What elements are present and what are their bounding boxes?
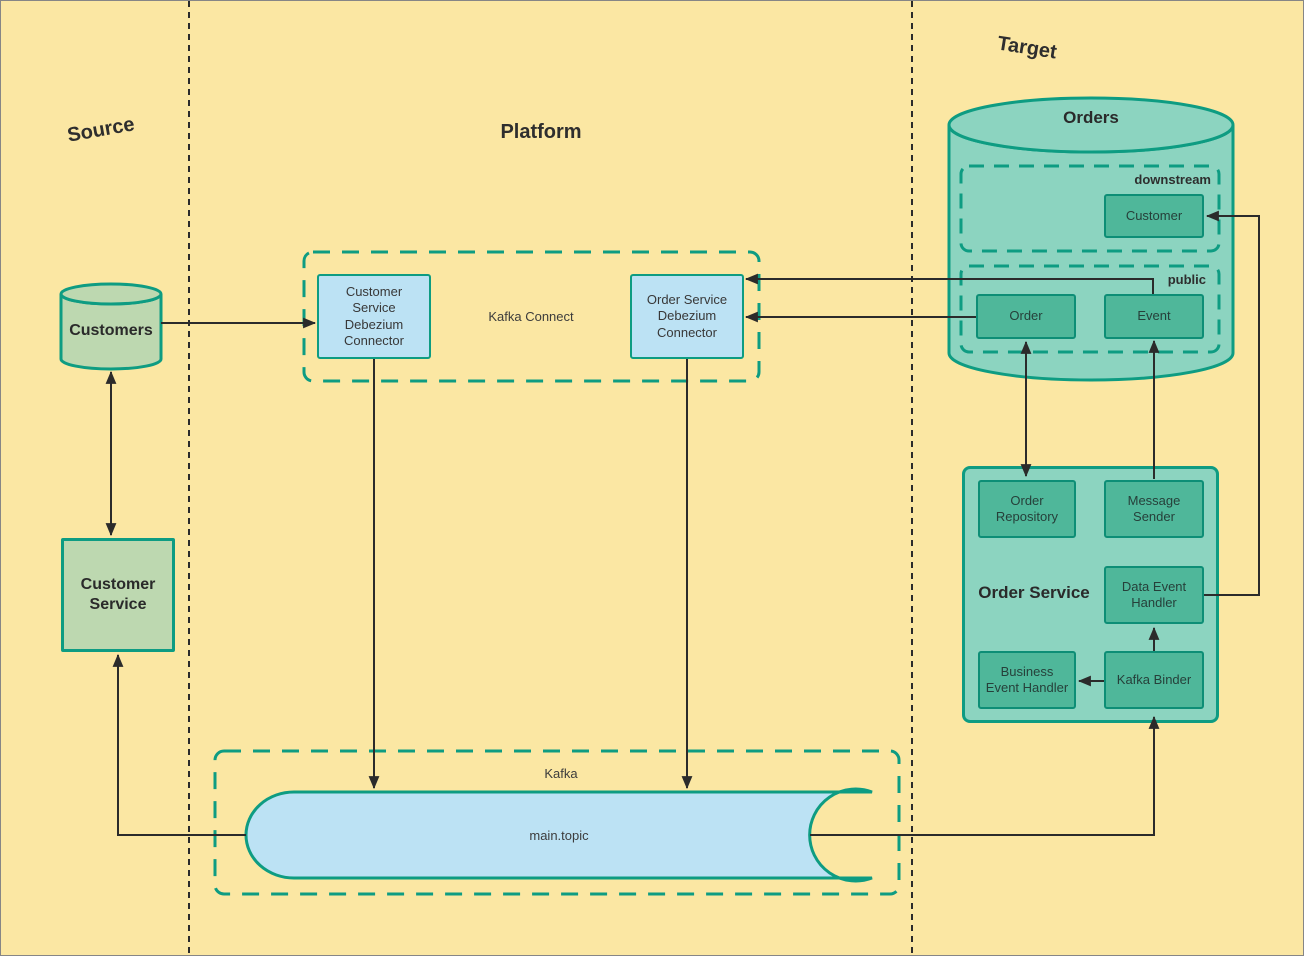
main-topic-label: main.topic <box>479 828 639 843</box>
section-title-target: Target <box>966 28 1088 69</box>
customer-table-node: Customer <box>1104 194 1204 238</box>
message-sender-node: Message Sender <box>1104 480 1204 538</box>
kafka-binder-label: Kafka Binder <box>1117 672 1191 688</box>
section-title-source: Source <box>55 111 148 149</box>
customer-service-debezium-connector-label: Customer Service Debezium Connector <box>323 284 425 349</box>
downstream-schema-label: downstream <box>1061 172 1211 187</box>
customer-service-label: Customer Service <box>70 575 166 615</box>
kafka-label: Kafka <box>501 766 621 781</box>
customer-table-label: Customer <box>1126 208 1182 224</box>
kafka-binder-node: Kafka Binder <box>1104 651 1204 709</box>
kafka-connect-label: Kafka Connect <box>461 309 601 324</box>
business-event-handler-label: Business Event Handler <box>983 664 1071 697</box>
event-table-label: Event <box>1137 308 1170 324</box>
message-sender-label: Message Sender <box>1109 493 1199 526</box>
order-service-debezium-connector-label: Order Service Debezium Connector <box>636 292 738 341</box>
customer-service-node: Customer Service <box>61 538 175 652</box>
order-table-node: Order <box>976 294 1076 339</box>
business-event-handler-node: Business Event Handler <box>978 651 1076 709</box>
customer-service-debezium-connector-node: Customer Service Debezium Connector <box>317 274 431 359</box>
order-service-debezium-connector-node: Order Service Debezium Connector <box>630 274 744 359</box>
data-event-handler-label: Data Event Handler <box>1109 579 1199 612</box>
diagram-canvas: Source Platform Target Customers Custome… <box>0 0 1304 956</box>
order-repository-node: Order Repository <box>978 480 1076 538</box>
edge-main-topic-to-kafka-binder <box>810 717 1154 835</box>
event-table-node: Event <box>1104 294 1204 339</box>
orders-db-label: Orders <box>1021 108 1161 128</box>
edge-main-topic-to-customer-service <box>118 655 246 835</box>
public-schema-label: public <box>1061 272 1206 287</box>
order-service-label: Order Service <box>964 583 1104 603</box>
order-table-label: Order <box>1009 308 1042 324</box>
order-repository-label: Order Repository <box>983 493 1071 526</box>
data-event-handler-node: Data Event Handler <box>1104 566 1204 624</box>
section-title-platform: Platform <box>471 121 611 144</box>
customers-db-label: Customers <box>61 322 161 340</box>
